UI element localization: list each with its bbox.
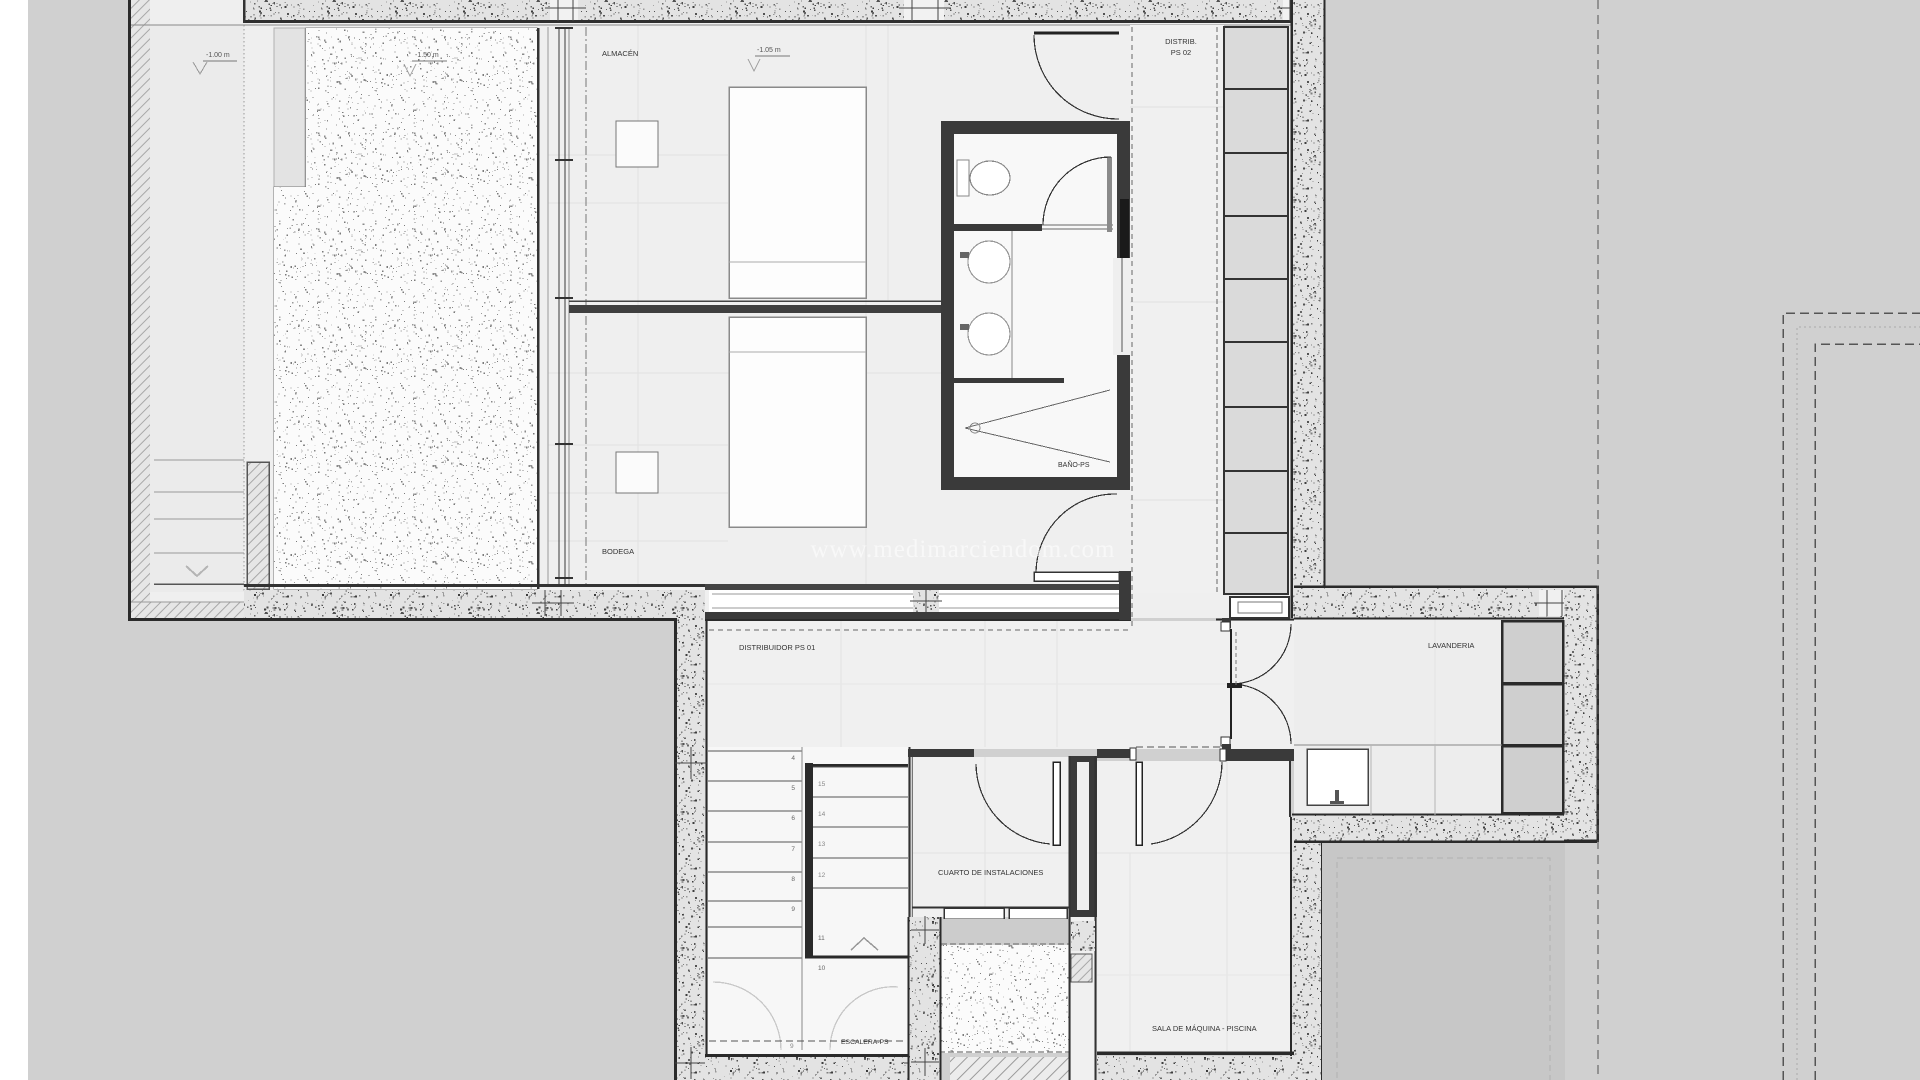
svg-text:7: 7: [791, 846, 795, 853]
svg-text:6: 6: [791, 815, 795, 822]
svg-text:SALA DE MÁQUINA - PISCINA: SALA DE MÁQUINA - PISCINA: [1152, 1024, 1257, 1033]
svg-text:CUARTO DE INSTALACIONES: CUARTO DE INSTALACIONES: [938, 868, 1043, 877]
svg-text:11: 11: [818, 935, 825, 942]
svg-text:15: 15: [818, 781, 826, 788]
svg-text:BODEGA: BODEGA: [602, 547, 634, 556]
svg-text:-1.50 m: -1.50 m: [415, 52, 439, 59]
svg-text:-1.00 m: -1.00 m: [206, 52, 230, 59]
svg-text:www.medimarciendom.com: www.medimarciendom.com: [810, 536, 1115, 563]
svg-text:8: 8: [791, 876, 795, 883]
svg-text:DISTRIB.: DISTRIB.: [1165, 37, 1197, 46]
svg-text:LAVANDERIA: LAVANDERIA: [1428, 641, 1474, 650]
svg-text:9: 9: [791, 906, 795, 913]
svg-text:5: 5: [791, 785, 795, 792]
svg-text:-1.05 m: -1.05 m: [757, 47, 781, 54]
svg-text:12: 12: [818, 872, 826, 879]
svg-text:9: 9: [790, 1043, 794, 1050]
svg-text:ESCALERA-PS: ESCALERA-PS: [841, 1039, 889, 1046]
svg-text:4: 4: [791, 755, 795, 762]
svg-text:10: 10: [818, 965, 826, 972]
svg-text:13: 13: [818, 841, 826, 848]
svg-text:DISTRIBUIDOR PS 01: DISTRIBUIDOR PS 01: [739, 643, 815, 652]
svg-text:BAÑO-PS: BAÑO-PS: [1058, 460, 1090, 469]
svg-text:ALMACÉN: ALMACÉN: [602, 49, 638, 58]
svg-text:14: 14: [818, 811, 826, 818]
svg-text:PS 02: PS 02: [1171, 48, 1191, 57]
